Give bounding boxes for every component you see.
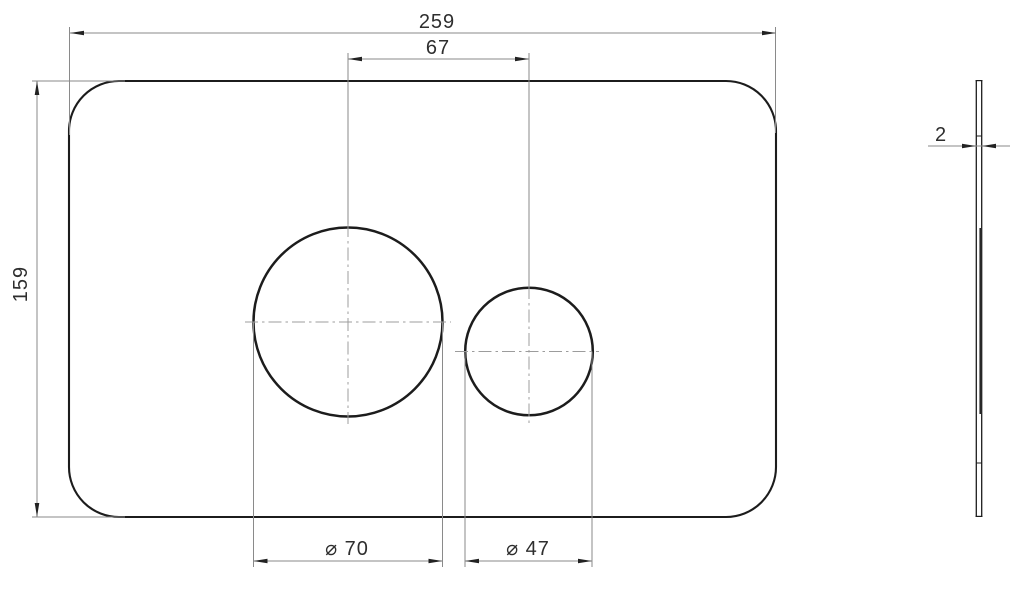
large-button-diameter-label: ⌀ 70 [325,538,369,560]
flush-plate-drawing: 259 67 159 ⌀ 70 ⌀ 47 [0,0,1024,595]
small-button-diameter-label: ⌀ 47 [506,538,550,560]
technical-drawing-page: 259 67 159 ⌀ 70 ⌀ 47 [0,0,1024,595]
overall-height-label: 159 [10,266,32,302]
drawing-background [0,0,1024,595]
overall-width-label: 259 [419,11,455,33]
thickness-label: 2 [935,124,947,146]
button-spacing-label: 67 [426,37,450,59]
